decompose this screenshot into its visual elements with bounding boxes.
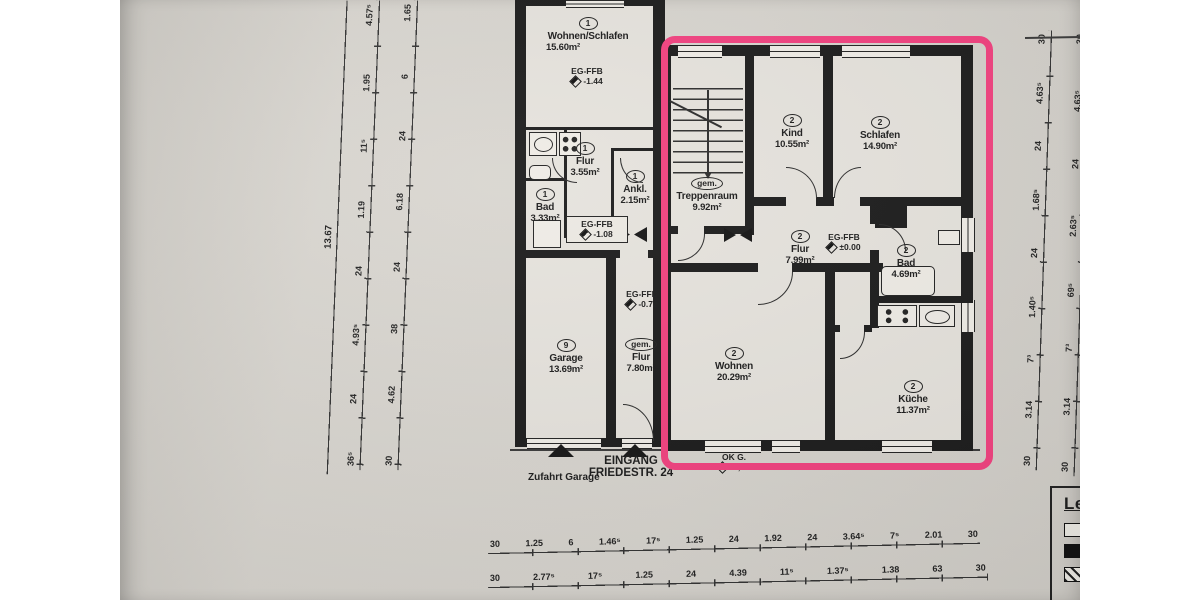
dimension-value: 30 <box>1023 456 1032 466</box>
swatch-existing-wall-solid <box>1064 544 1080 558</box>
dimension-value: 1.40⁵ <box>1028 296 1038 318</box>
swatch-new-wall-hatched <box>1064 567 1080 582</box>
dimension-value: 3.64⁵ <box>843 532 865 541</box>
room-label-flur1: 1 Flur 3.55m² <box>562 138 608 179</box>
legend: Legende : MW Bestand MW Neu / Ersatz <box>1050 486 1080 600</box>
dimension-value: 30 <box>968 530 978 539</box>
dimension-value: 17⁵ <box>646 536 660 545</box>
dimension-value: 24 <box>729 535 739 544</box>
dimension-value: 7³ <box>1026 355 1035 363</box>
wall-segment <box>526 127 654 130</box>
dimension-chain-left-b: 1.656246.1824384.6230 <box>384 0 421 470</box>
dimension-value: 13.67 <box>322 225 335 249</box>
legend-title: Legende : <box>1064 494 1080 514</box>
dimension-value: 4.57⁵ <box>365 4 375 26</box>
room-number-badge: 1 <box>536 188 555 201</box>
level-diamond-icon <box>579 229 592 242</box>
dimension-value: 2.63⁵ <box>1069 215 1079 237</box>
dimension-value: 69⁵ <box>1067 283 1076 298</box>
level-marker: EG-FFB -1.44 <box>552 66 622 86</box>
dimension-value: 6 <box>568 538 573 547</box>
room-number-badge: 1 <box>576 142 595 155</box>
dimension-value: 1.92 <box>764 534 782 543</box>
level-marker-boxed: EG-FFB -1.08 <box>566 216 628 243</box>
toilet <box>529 165 551 180</box>
dimension-chain-left-total: 13.67 <box>312 0 350 474</box>
dimension-chain-right-b: 304.63⁵242.63⁵69⁵7³3.1430 <box>1060 30 1080 476</box>
dimension-value: 24 <box>686 570 696 579</box>
room-number-badge: 9 <box>557 339 576 352</box>
dimension-value: 4.93⁵ <box>352 324 362 346</box>
dimension-value: 4.63⁵ <box>1035 82 1045 104</box>
dimension-value: 1.19 <box>357 201 367 219</box>
level-marker: EG-FFB -0.72 <box>618 289 666 309</box>
dimension-value: 1.38 <box>882 565 900 574</box>
dimension-value: 38 <box>390 324 399 334</box>
dimension-value: 30 <box>1038 34 1047 44</box>
dimension-value: 3.14 <box>1063 398 1073 416</box>
window-symbol <box>566 0 624 8</box>
dimension-value: 11⁵ <box>780 568 794 577</box>
dimension-value: 4.63⁵ <box>1073 90 1080 112</box>
dimension-value: 30 <box>1061 462 1070 472</box>
highlight-rectangle <box>661 36 993 470</box>
floorplan-scan-screenshot: 1 Wohnen/Schlafen 15.60m² EG-FFB -1.44 1… <box>0 0 1200 600</box>
dimension-value: 17⁵ <box>588 572 602 581</box>
level-diamond-icon <box>624 299 637 312</box>
wall-segment <box>611 148 654 151</box>
dimension-value: 24 <box>1030 248 1039 258</box>
dimension-value: 6 <box>401 74 410 79</box>
dimension-value: 2.01 <box>925 530 943 539</box>
scanned-paper: 1 Wohnen/Schlafen 15.60m² EG-FFB -1.44 1… <box>120 0 1080 600</box>
dimension-value: 7⁵ <box>890 531 899 540</box>
wall-segment <box>606 258 616 447</box>
room-label-ankl: 1 Ankl. 2.15m² <box>614 166 656 207</box>
dimension-chain-right-a: 304.63⁵241.68⁵241.40⁵7³3.1430 <box>1023 30 1055 470</box>
dimension-value: 1.68⁵ <box>1032 189 1042 211</box>
swatch-existing-wall <box>1064 523 1080 537</box>
wall-segment <box>515 250 620 258</box>
legend-row-bestand: MW Bestand <box>1064 523 1080 558</box>
dimension-value: 30 <box>490 574 500 583</box>
dimension-value: 1.95 <box>362 74 372 92</box>
dimension-value: 24 <box>354 266 363 276</box>
dimension-value: 1.46⁵ <box>599 537 621 546</box>
room-label-gem-flur: gem. Flur 7.80m² <box>618 334 664 375</box>
garage-entry-marker <box>548 444 574 457</box>
dimension-value: 2.77⁵ <box>533 573 555 582</box>
dimension-value: 1.25 <box>686 535 704 544</box>
dimension-chain-bottom-1: 301.2561.46⁵17⁵1.25241.92243.64⁵7⁵2.0130 <box>488 530 980 557</box>
dimension-value: 1.25 <box>635 571 653 580</box>
dimension-chain-left-a: 4.57⁵1.9511⁵1.19244.93⁵2436⁵ <box>346 0 383 470</box>
extension-line <box>1025 35 1080 38</box>
room-label-garage: 9 Garage 13.69m² <box>526 335 606 376</box>
dimension-value: 24 <box>807 533 817 542</box>
room-number-badge: 1 <box>626 170 645 183</box>
room-number-badge: 1 <box>579 17 598 30</box>
dimension-value: 3.14 <box>1024 401 1034 419</box>
dimension-value: 24 <box>349 393 358 403</box>
legend-swatch-bestand <box>1064 523 1080 558</box>
kitchen-sink <box>529 132 557 156</box>
dimension-value: 24 <box>1034 141 1043 151</box>
dimension-value: 1.65 <box>403 4 413 22</box>
dimension-value: 1.37⁵ <box>827 566 849 575</box>
dimension-value: 30 <box>384 456 393 466</box>
dimension-value: 7³ <box>1065 343 1074 351</box>
room-label-bad1: 1 Bad 3.33m² <box>524 184 566 225</box>
room-number-badge: gem. <box>625 338 657 351</box>
room-label-wohnen-schlafen: 1 Wohnen/Schlafen 15.60m² <box>528 13 648 54</box>
dimension-value: 63 <box>932 564 942 573</box>
legend-row-neu: MW Neu / Ersatz <box>1064 567 1080 582</box>
dimension-value: 24 <box>398 131 407 141</box>
dimension-value: 36⁵ <box>346 451 356 466</box>
dimension-value: 1.25 <box>525 539 543 548</box>
dimension-value: 30 <box>976 564 986 573</box>
dimension-value: 11⁵ <box>360 139 370 153</box>
dimension-value: 30 <box>490 540 500 549</box>
dimension-value: 4.39 <box>729 569 747 578</box>
dimension-value: 6.18 <box>395 193 405 211</box>
dimension-chain-bottom-2: 302.77⁵17⁵1.25244.3911⁵1.37⁵1.386330 <box>488 564 988 591</box>
level-diamond-icon <box>569 76 582 89</box>
dimension-value: 4.62 <box>387 386 397 404</box>
dimension-value: 24 <box>1071 158 1080 168</box>
dimension-value: 24 <box>393 262 402 272</box>
